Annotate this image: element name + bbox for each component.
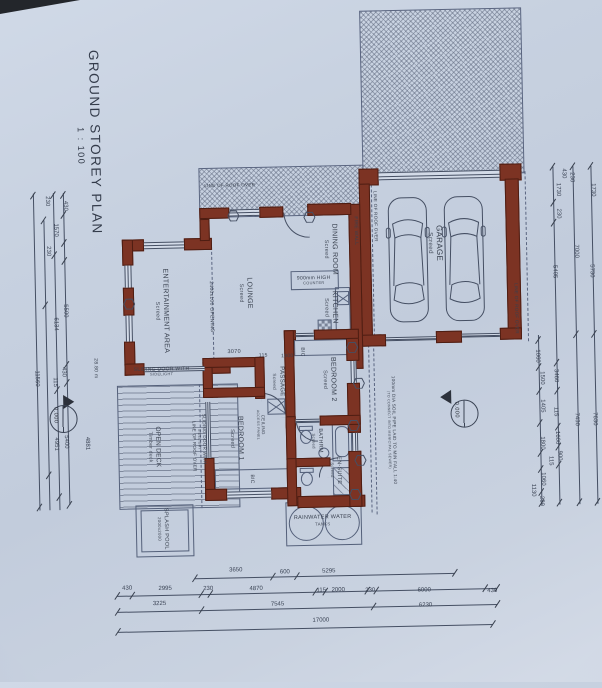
dim-label: 4870 (249, 586, 262, 592)
dim-label: 7545 (271, 601, 284, 607)
fitting-symbol-icon (353, 376, 365, 394)
dim-label: 430 (62, 201, 68, 211)
dim-label: 1730 (590, 183, 596, 196)
dim-label: 7630 (592, 412, 598, 425)
dimension-line (118, 624, 493, 633)
dim-label: 5405 (551, 265, 557, 278)
dimension-tick (577, 498, 583, 506)
dim-label: 115 (52, 377, 58, 387)
dim-115-passage: 115 (259, 353, 268, 359)
dim-label: 230 (45, 246, 51, 256)
blueprint-photo: { "title": {"text": "GROUND STOREY PLAN"… (0, 0, 602, 682)
fitting-symbol-icon (348, 418, 360, 436)
dim-label: 7000 (573, 244, 579, 257)
dim-label: 3650 (229, 567, 242, 573)
roof-over-note-deck: LINE OF ROOF OVER (191, 421, 198, 472)
sliding-door-note-bedroom1: SLIDING DOOR WITHSIDELIGHT (196, 414, 207, 465)
window-opening (296, 419, 320, 424)
dim-label: 5500 (62, 304, 68, 317)
dim-label: 900 (556, 451, 562, 461)
roof-line-garage-right (524, 171, 529, 341)
dimension-tick (452, 569, 458, 577)
dim-label: 6230 (419, 602, 432, 608)
datum-marker-left: 0.000 (49, 405, 78, 434)
fitting-symbol-icon (349, 487, 361, 505)
wall-segment (199, 219, 209, 241)
soil-pipe-line-1 (368, 345, 373, 513)
dimension-line (33, 194, 41, 511)
fitting-symbol-icon (303, 210, 315, 228)
dim-label: 5295 (322, 568, 335, 574)
datum-value: 0.000 (52, 407, 58, 423)
dim-label: 4951 (53, 437, 59, 450)
wall-segment (259, 206, 283, 218)
dim-label: 430 (60, 367, 66, 377)
window-opening (296, 333, 314, 337)
bic-note-bedroom2: BIC (299, 347, 305, 356)
dim-label: 115 (552, 407, 558, 417)
window-opening (125, 316, 133, 342)
dimension-line (118, 604, 498, 613)
datum-arrow-icon (440, 390, 451, 404)
dim-label: 11560 (34, 370, 40, 386)
dim-label: 5400 (63, 435, 69, 448)
window-opening (144, 241, 184, 249)
roof-over-note-garage-right: LINE OF ROOF OVER (513, 283, 520, 334)
passage-label: PASSAGEScreed (271, 366, 285, 397)
window-opening (378, 170, 499, 181)
wall-segment (122, 239, 134, 265)
dim-label: 1570 (52, 223, 58, 236)
sliding-door-note-entertainment: SLIDING DOOR WITHSIDELIGHT (134, 366, 190, 378)
dimension-tick (66, 501, 72, 509)
fitting-symbol-icon (227, 208, 239, 226)
dim-label: 1500 (539, 371, 545, 384)
dimension-line (53, 193, 61, 510)
open-deck-label: OPEN DECKTimber deck (147, 426, 162, 467)
drawing-title: GROUND STOREY PLAN 1 : 100 (73, 50, 105, 235)
dim-1000-passage: 1000 (281, 353, 293, 360)
datum-marker-right: 0.000 (450, 399, 479, 428)
window-opening (462, 333, 500, 338)
dimension-line (43, 220, 50, 510)
bedroom2-label: BEDROOM 2Screed (321, 357, 337, 402)
dim-label: 230 (555, 209, 561, 219)
wall-segment (284, 330, 296, 428)
window-opening (124, 266, 131, 288)
dim-label: 4881 (84, 437, 90, 450)
driveway-paving (359, 7, 524, 176)
roof-over-note-top: LINE OF ROOF OVER (204, 182, 255, 189)
dim-label: 1730 (555, 183, 561, 196)
wall-segment (199, 207, 229, 219)
dimension-tick (595, 498, 601, 506)
bathroom-label: BATHRMScreed (311, 428, 324, 453)
wall-segment (436, 331, 462, 344)
bic-note-bedroom1: BIC (249, 474, 255, 483)
title-text: GROUND STOREY PLAN (84, 50, 105, 235)
dim-label: 3225 (153, 601, 166, 607)
car-2 (441, 192, 488, 325)
bedroom1-label: BEDROOM 1Screed (228, 416, 244, 461)
dim-label: 430 (487, 588, 497, 594)
dim-label: 430 (560, 168, 566, 178)
floor-plan-sheet: GROUND STOREY PLAN 1 : 100 GARAGEScreedD… (0, 0, 602, 688)
cistern-ensuite (300, 468, 314, 473)
dining-room-label: DINING ROOMScreed (322, 223, 339, 275)
soil-pipe-line-2 (373, 348, 377, 514)
dim-label: 2000 (331, 587, 344, 593)
dim-label: 1060 (540, 472, 546, 485)
entertainment-area-label: ENTERTAINMENT AREAScreed (153, 268, 170, 353)
dim-label: 1060 (534, 349, 540, 362)
dimension-tick (557, 499, 563, 507)
soil-pipe-note: 100mm DIA SOIL PIPE LAID TO MIN FALL 1:4… (386, 376, 398, 485)
datum-value: 0.000 (453, 402, 459, 418)
dim-label: 115 (316, 588, 326, 594)
wall-segment (203, 387, 265, 398)
dim-label: 230 (569, 172, 575, 182)
opening-note: 2400x100 OPENING (208, 281, 215, 332)
dimension-tick (495, 600, 501, 608)
dim-label: 6000 (418, 587, 431, 593)
wall-segment (314, 329, 359, 340)
dim-label: 115 (547, 456, 553, 466)
kitchen-label: KITCHENScreed (322, 291, 338, 324)
dim-label: 430 (122, 586, 132, 592)
kitchen-sink (337, 291, 349, 305)
splash-pool-label: SPLASH POOL2000x2000 (156, 508, 169, 550)
rainwater-tanks-label: RAINWATER WATERTANKS (294, 514, 352, 527)
dim-label: 7430 (574, 413, 580, 426)
dim-label: 1800 (539, 436, 545, 449)
toilet-ensuite (301, 472, 313, 486)
car-1 (385, 193, 432, 326)
dim-label: 17000 (312, 617, 329, 623)
roof-over-note-garage-left: LINE OF ROOF OVER (372, 191, 379, 242)
dim-label: 230 (538, 496, 544, 506)
counter-note: 900mm HIGHCOUNTER (297, 275, 331, 287)
datum-circle: 0.000 (49, 405, 78, 434)
dim-label: 1600 (554, 431, 560, 444)
ceiling-access-note: CEILINGACCESS PANEL (255, 410, 266, 440)
dim-label: 1130 (530, 484, 536, 497)
fitting-symbol-icon (346, 340, 358, 358)
garage-label: GARAGEScreed (426, 225, 445, 261)
dim-label: 230 (365, 588, 375, 594)
window-opening (386, 336, 436, 341)
wall-segment (205, 489, 227, 501)
dim-label: 5730 (588, 264, 594, 277)
ensuite-label: EN-SUITEScreed (329, 456, 342, 484)
wall-segment (286, 458, 297, 506)
dim-label: 1405 (539, 399, 545, 412)
dim-label: 600 (280, 569, 290, 575)
dim-label: 3460 (553, 369, 559, 382)
wall-segment (362, 334, 386, 347)
lounge-label: LOUNGEScreed (237, 277, 253, 309)
fitting-symbol-icon (123, 296, 135, 314)
dimension-tick (490, 620, 496, 628)
dim-3070: 3070 (227, 349, 241, 356)
fire-wall-note: FIRE WALL (352, 216, 359, 245)
dim-label: 6134 (52, 317, 58, 330)
datum-circle: 0.000 (450, 399, 479, 428)
fitting-symbol-icon (354, 453, 366, 471)
dimension-line (117, 588, 497, 597)
dim-label: 2995 (158, 586, 171, 592)
dim-label: 230 (44, 196, 50, 206)
area-note: 28.80 m (92, 358, 99, 378)
dim-label: 230 (203, 586, 213, 592)
window-opening (227, 491, 271, 499)
